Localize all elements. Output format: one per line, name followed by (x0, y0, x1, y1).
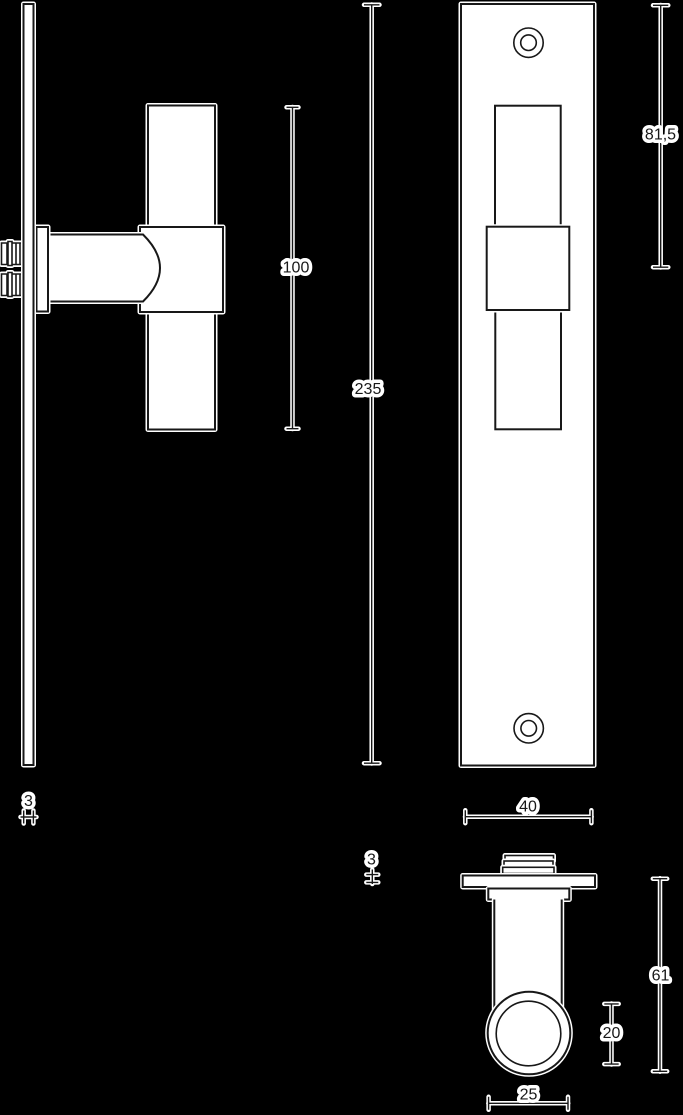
spindle-step-3-halo (503, 867, 554, 873)
bottom-view (463, 856, 595, 1075)
dim-handle-center-from-top-label: 81,5 (645, 127, 676, 144)
dim-plate-thickness-bottom: 3 (366, 852, 378, 885)
dim-plate-thickness-bottom-label: 3 (367, 852, 376, 869)
backplate-side-halo (24, 4, 34, 765)
dim-plate-length: 235 (355, 5, 382, 764)
dim-plate-length-label: 235 (355, 381, 382, 398)
dim-handle-projection-label: 61 (652, 968, 670, 985)
dim-grip-diameter: 25 (488, 1087, 568, 1110)
front-view (461, 4, 594, 766)
backplate-bottom-halo (463, 876, 595, 888)
dim-neck-diameter-label: 20 (603, 1025, 621, 1042)
dim-grip-length: 100 (283, 107, 310, 429)
grip-upper-front-halo (495, 106, 561, 227)
neck-side-halo (48, 235, 160, 302)
dim-plate-thickness-side: 3 (21, 793, 37, 824)
dim-plate-width-label: 40 (519, 799, 537, 816)
side-view (2, 4, 224, 765)
dim-grip-diameter-label: 25 (520, 1087, 538, 1104)
technical-drawing: 100 235 81,5 3 40 3 (0, 0, 683, 1115)
dim-grip-length-label: 100 (283, 260, 310, 277)
dim-neck-diameter: 20 (603, 1004, 621, 1065)
flange-side-halo (37, 227, 49, 312)
dim-handle-projection: 61 (652, 878, 670, 1071)
dim-handle-center-from-top: 81,5 (645, 5, 676, 268)
grip-lower-front-halo (495, 310, 561, 429)
dim-plate-width: 40 (465, 799, 592, 824)
dim-plate-thickness-side-label: 3 (24, 793, 33, 810)
hub-front-halo (487, 227, 570, 310)
